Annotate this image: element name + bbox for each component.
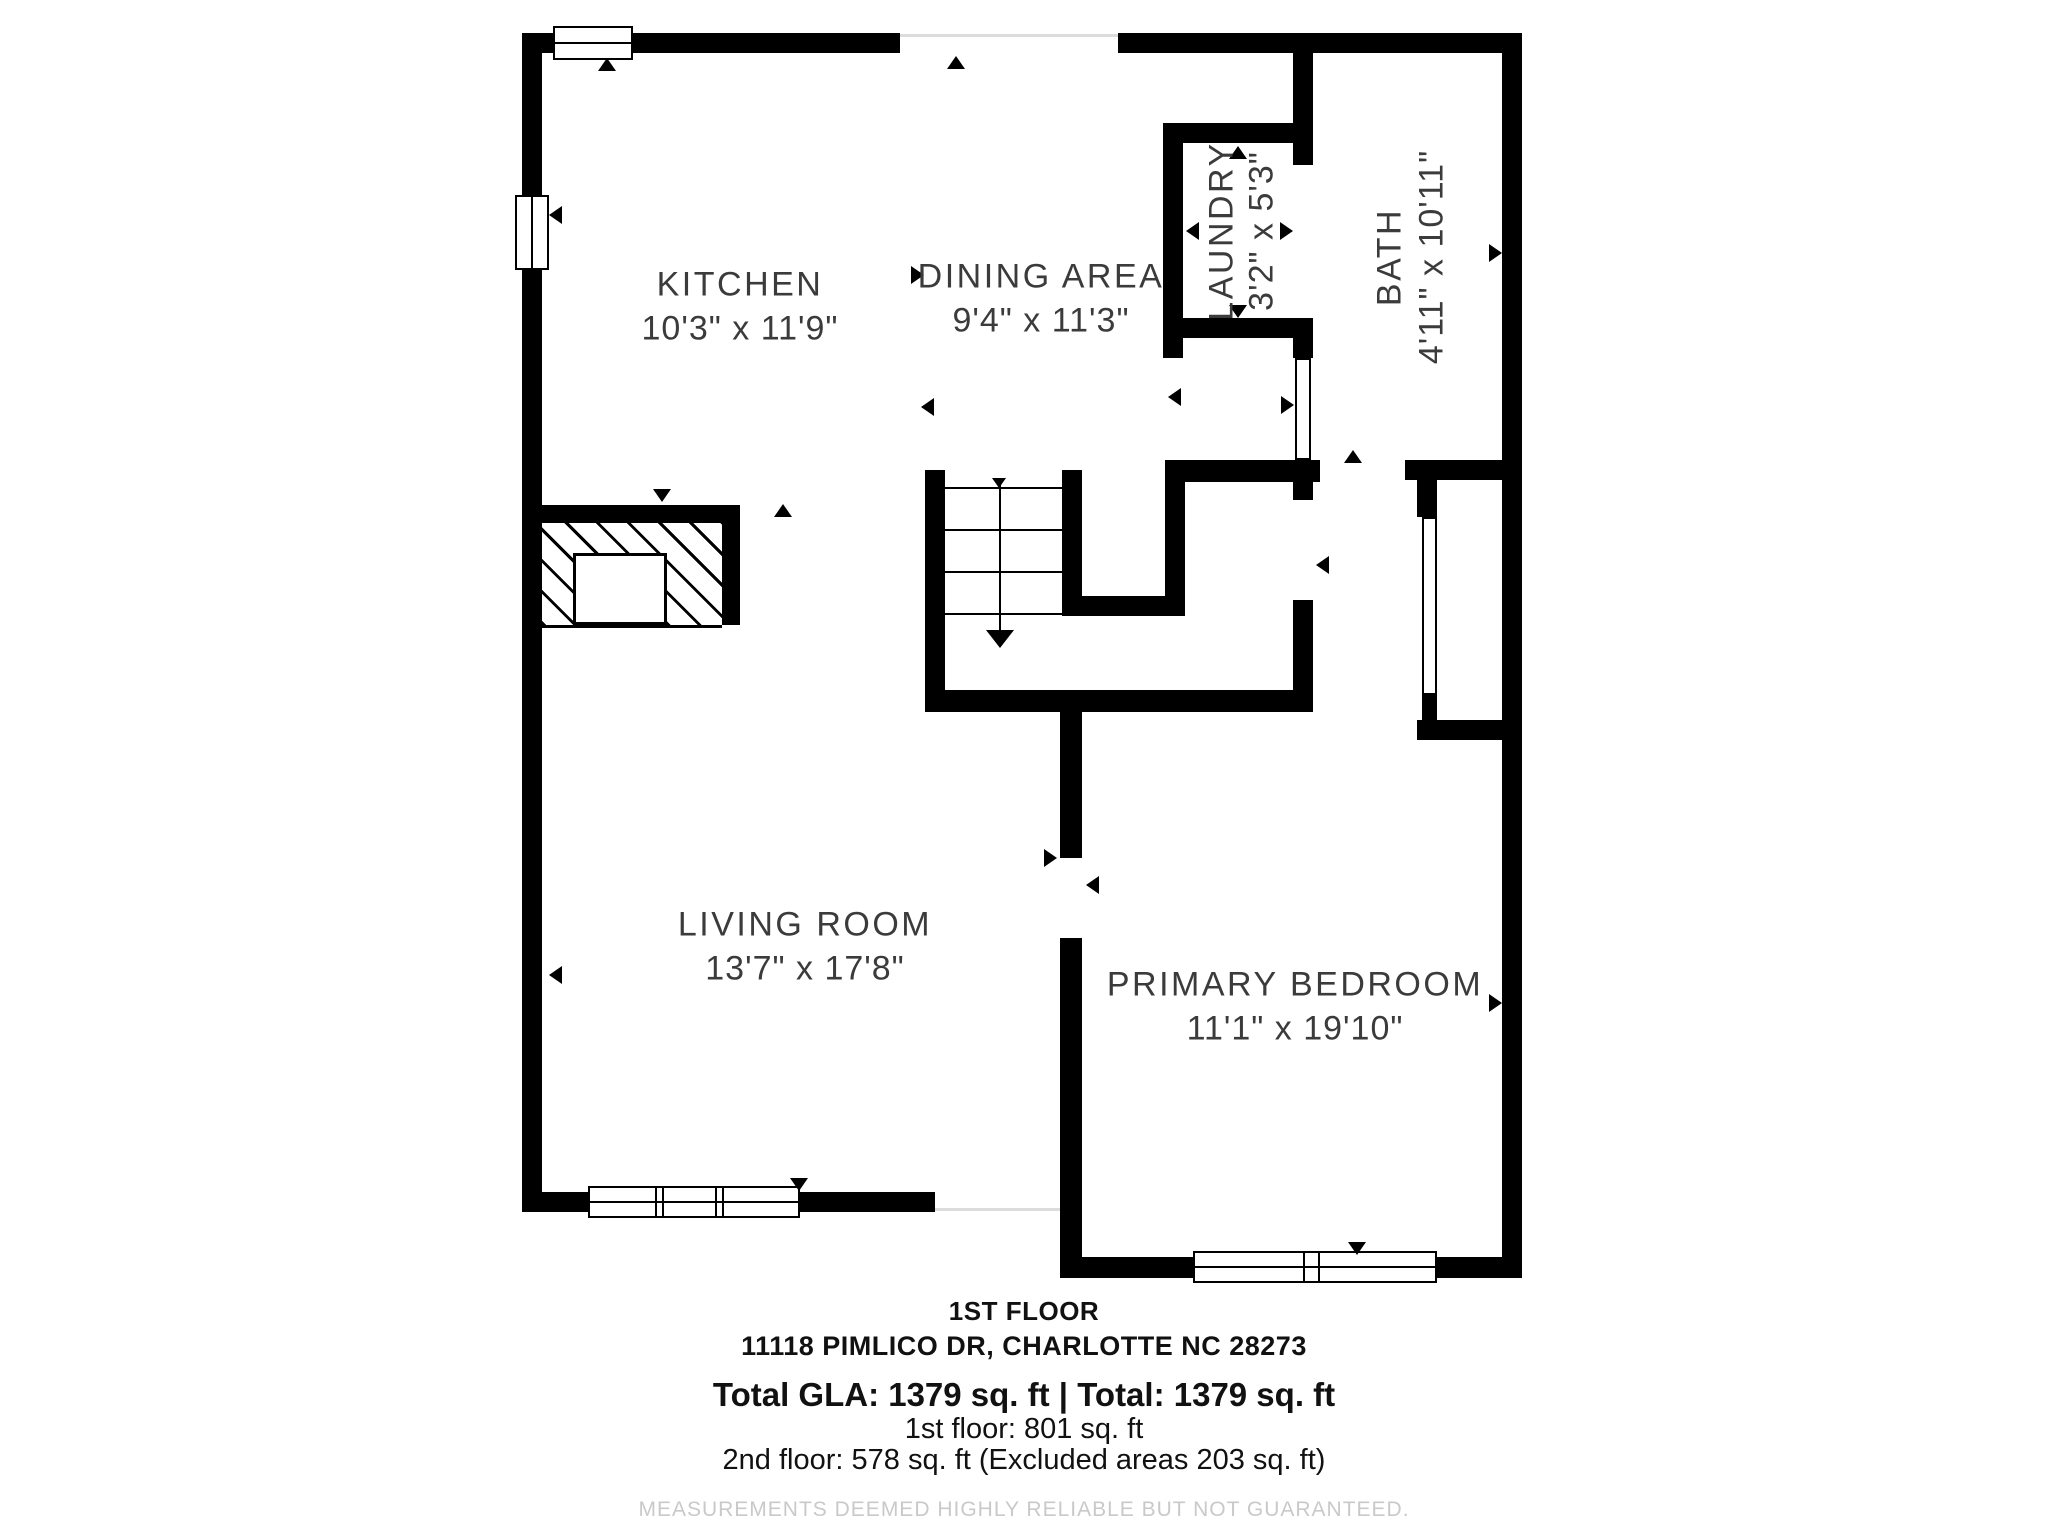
opening-top-entry: [900, 34, 1118, 37]
wall-bathline-stub: [1293, 482, 1313, 500]
room-dims-laundry: 3'2" x 5'3": [1243, 151, 1282, 311]
wall-closet-top-stub: [1417, 480, 1437, 517]
wall-laundry-right-upper: [1293, 53, 1313, 165]
window-living-bottom: [588, 1186, 800, 1218]
stair-tread: [945, 571, 1062, 573]
window-mullion: [655, 1188, 657, 1216]
stair-tread: [945, 613, 1062, 615]
marker-rear-door-icon: [790, 1178, 808, 1191]
door-leaf-closet: [1422, 517, 1437, 695]
fireplace-firebox: [573, 553, 667, 625]
room-dims-kitchen: 10'3" x 11'9": [642, 310, 839, 349]
marker-bath-door-leaf-icon: [1281, 396, 1294, 414]
window-pane-line: [555, 42, 631, 44]
wall-closet-bottom: [1417, 720, 1502, 740]
stair-direction-line: [999, 483, 1001, 633]
stair-arrow-down-icon: [986, 630, 1014, 648]
marker-dining-lower-icon: [921, 398, 934, 416]
marker-bath-door-icon: [1344, 450, 1362, 463]
fireplace-right-wall: [722, 505, 740, 625]
wall-laundry-right-lower: [1293, 318, 1313, 358]
footer-disclaimer: MEASUREMENTS DEEMED HIGHLY RELIABLE BUT …: [0, 1498, 2048, 1522]
window-pane-line: [1195, 1266, 1435, 1268]
window-kitchen-left: [515, 195, 549, 270]
wall-bath-bottom-right: [1405, 460, 1502, 480]
marker-bath-right-icon: [1489, 244, 1502, 262]
wall-laundry-bottom: [1163, 318, 1313, 338]
window-bedroom-bottom: [1193, 1251, 1437, 1283]
window-mullion: [1303, 1253, 1305, 1281]
footer-address: 11118 PIMLICO DR, CHARLOTTE NC 28273: [0, 1331, 2048, 1362]
room-label-bedroom: PRIMARY BEDROOM: [1107, 966, 1483, 1005]
wall-nook-left: [1062, 470, 1082, 616]
marker-passage-icon: [774, 504, 792, 517]
marker-bedroom-window-icon: [1348, 1242, 1366, 1255]
wall-stair-bottom: [925, 690, 1313, 712]
wall-stair-left: [925, 470, 945, 712]
wall-hall-top: [1165, 460, 1320, 482]
floorplan-page: KITCHEN 10'3" x 11'9" DINING AREA 9'4" x…: [0, 0, 2048, 1536]
marker-laundry-right-icon: [1280, 222, 1293, 240]
wall-top-right: [1118, 33, 1522, 53]
marker-kitchen-window-icon: [549, 206, 562, 224]
marker-living-left-icon: [549, 966, 562, 984]
marker-hall-opening-icon: [1168, 388, 1181, 406]
marker-top-window-icon: [598, 58, 616, 71]
window-pane-line: [531, 197, 533, 268]
wall-laundry-top: [1163, 123, 1313, 143]
footer-total-gla: Total GLA: 1379 sq. ft | Total: 1379 sq.…: [0, 1376, 2048, 1414]
stair-tread: [945, 529, 1062, 531]
marker-laundry-left-icon: [1186, 222, 1199, 240]
footer-second-floor-area: 2nd floor: 578 sq. ft (Excluded areas 20…: [0, 1444, 2048, 1477]
fireplace-top-wall: [542, 505, 740, 523]
window-mullion: [662, 1188, 664, 1216]
marker-entry-icon: [947, 56, 965, 69]
room-label-laundry: LAUNDRY: [1203, 141, 1242, 320]
window-pane-line: [590, 1201, 798, 1203]
room-dims-bedroom: 11'1" x 19'10": [1187, 1010, 1404, 1049]
window-kitchen-top: [553, 26, 633, 60]
door-leaf-bath: [1295, 358, 1311, 460]
room-dims-dining: 9'4" x 11'3": [952, 302, 1129, 341]
wall-right: [1502, 33, 1522, 1278]
room-label-kitchen: KITCHEN: [657, 266, 824, 305]
footer-first-floor-area: 1st floor: 801 sq. ft: [0, 1413, 2048, 1446]
marker-bedroom-door-right-icon: [1086, 876, 1099, 894]
opening-rear-door: [935, 1208, 1060, 1211]
window-mullion: [715, 1188, 717, 1216]
window-mullion: [722, 1188, 724, 1216]
room-label-living: LIVING ROOM: [678, 906, 932, 945]
stair-arrow-start-icon: [992, 478, 1006, 488]
wall-divider-upper: [1060, 712, 1082, 858]
room-label-bath: BATH: [1371, 208, 1410, 306]
room-dims-living: 13'7" x 17'8": [705, 950, 904, 989]
marker-bedroom-right-icon: [1489, 994, 1502, 1012]
window-mullion: [1318, 1253, 1320, 1281]
wall-nook-right: [1165, 470, 1185, 616]
wall-bathline-lower: [1293, 600, 1313, 712]
room-label-dining: DINING AREA: [918, 258, 1165, 297]
wall-divider-lower: [1060, 938, 1082, 1278]
wall-closet-bottom-stub: [1422, 695, 1437, 720]
room-dims-bath: 4'11" x 10'11": [1413, 150, 1452, 364]
marker-corridor-icon: [1316, 556, 1329, 574]
marker-bedroom-door-left-icon: [1044, 849, 1057, 867]
marker-fireplace-icon: [653, 489, 671, 502]
footer-floor-label: 1ST FLOOR: [0, 1296, 2048, 1327]
